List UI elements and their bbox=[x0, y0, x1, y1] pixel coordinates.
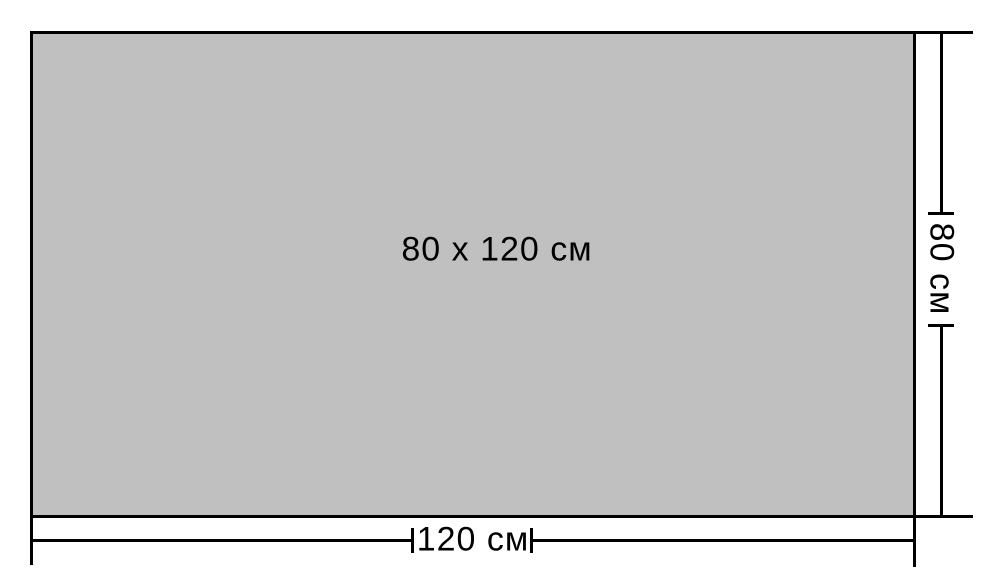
extension-line-top-right bbox=[913, 31, 973, 34]
dimensioned-rectangle bbox=[30, 31, 916, 518]
width-dimension-line-right bbox=[533, 539, 916, 542]
rectangle-size-label: 80 x 120 см bbox=[401, 231, 592, 270]
width-dimension-line-left bbox=[30, 539, 413, 542]
height-dimension-line-bottom bbox=[940, 326, 943, 517]
width-dimension-label: 120 см bbox=[417, 521, 530, 560]
width-dimension-tick-left bbox=[411, 528, 414, 553]
width-dimension-tick-right bbox=[530, 528, 533, 553]
height-dimension-tick-bottom bbox=[928, 324, 954, 327]
height-dimension-tick-top bbox=[928, 212, 954, 215]
extension-line-bottom-right bbox=[913, 515, 973, 518]
height-dimension-line-top bbox=[940, 32, 943, 213]
diagram-canvas: 80 x 120 см 120 см 80 см bbox=[0, 0, 1000, 582]
height-dimension-label: 80 см bbox=[922, 223, 961, 316]
